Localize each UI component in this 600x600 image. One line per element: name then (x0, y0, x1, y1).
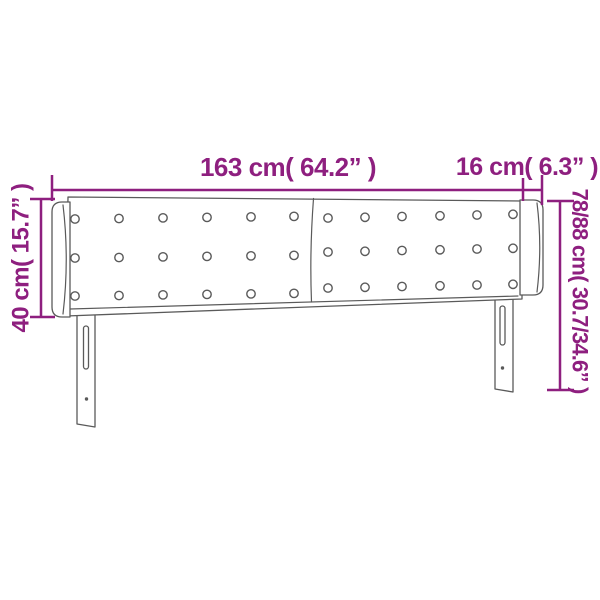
tufting-button (324, 284, 332, 292)
tufting-button (290, 212, 298, 220)
right-leg-screw-hole (501, 366, 504, 369)
right-ear (520, 200, 543, 295)
left-leg (77, 308, 95, 427)
tufting-button (509, 210, 517, 218)
tufting-button (361, 283, 369, 291)
tufting-button (159, 214, 167, 222)
tufting-button (473, 281, 481, 289)
tufting-button (71, 292, 79, 300)
tufting-button (436, 246, 444, 254)
tufting-button (203, 290, 211, 298)
tufting-button (436, 212, 444, 220)
dim-side-height: 40 cm( 15.7” ) (8, 183, 56, 332)
right-leg-slot (500, 306, 505, 345)
left-ear-outline (52, 202, 70, 317)
tufting-button (290, 251, 298, 259)
tufting-button (71, 215, 79, 223)
tufting-button (71, 254, 79, 262)
tufting-button (247, 252, 255, 260)
dim-total-height: 78/88 cm( 30.7/34.6” ) (547, 189, 593, 394)
tufting-button (115, 214, 123, 222)
tufting-button (324, 214, 332, 222)
right-leg (495, 294, 513, 392)
tufting-button (509, 244, 517, 252)
headboard-dimension-diagram: 163 cm( 64.2” ) 16 cm( 6.3” ) 40 cm( 15.… (0, 0, 600, 600)
tufting-button (398, 212, 406, 220)
tufting-button (398, 282, 406, 290)
tufting-button (290, 289, 298, 297)
tufting-button (361, 247, 369, 255)
left-leg-screw-hole (85, 397, 88, 400)
dim-total-height-label: 78/88 cm( 30.7/34.6” ) (568, 189, 593, 394)
tufting-button (115, 253, 123, 261)
tufting-button (509, 280, 517, 288)
tufting-button (159, 291, 167, 299)
dim-ear-width-label: 16 cm( 6.3” ) (456, 153, 598, 181)
left-ear (52, 202, 70, 317)
tufting-button (247, 213, 255, 221)
dim-total-width-label: 163 cm( 64.2” ) (200, 152, 376, 182)
tufting-button (247, 290, 255, 298)
tufting-button (203, 213, 211, 221)
tufting-button (159, 253, 167, 261)
diagram-stage: 163 cm( 64.2” ) 16 cm( 6.3” ) 40 cm( 15.… (0, 0, 600, 600)
tufting-button (473, 245, 481, 253)
tufting-button (203, 252, 211, 260)
headboard-drawing (52, 197, 543, 427)
tufting-button (361, 213, 369, 221)
tufting-button (473, 211, 481, 219)
left-leg-slot (84, 326, 89, 369)
tufting-button (398, 246, 406, 254)
tufting-button (324, 248, 332, 256)
dim-side-height-label: 40 cm( 15.7” ) (8, 183, 35, 332)
tufting-button (115, 291, 123, 299)
tufting-button (436, 282, 444, 290)
